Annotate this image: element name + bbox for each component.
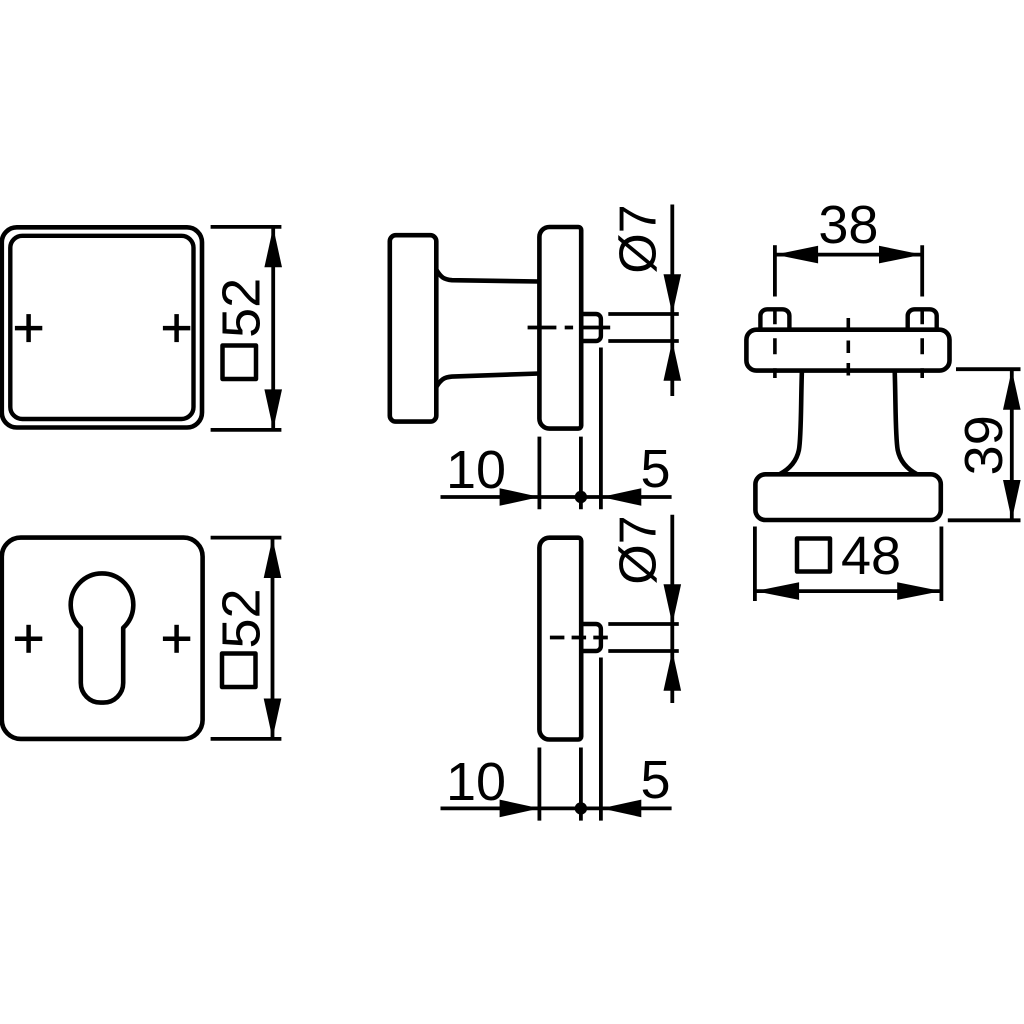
svg-text:39: 39 — [954, 415, 1014, 475]
svg-text:10: 10 — [446, 752, 506, 812]
svg-text:52: 52 — [212, 588, 272, 648]
svg-text:48: 48 — [841, 526, 901, 586]
svg-text:Ø7: Ø7 — [610, 204, 668, 273]
svg-text:38: 38 — [818, 195, 878, 255]
svg-text:5: 5 — [640, 439, 670, 499]
svg-text:52: 52 — [212, 278, 272, 338]
svg-text:5: 5 — [640, 750, 670, 810]
svg-text:Ø7: Ø7 — [610, 515, 668, 584]
svg-text:10: 10 — [446, 440, 506, 500]
